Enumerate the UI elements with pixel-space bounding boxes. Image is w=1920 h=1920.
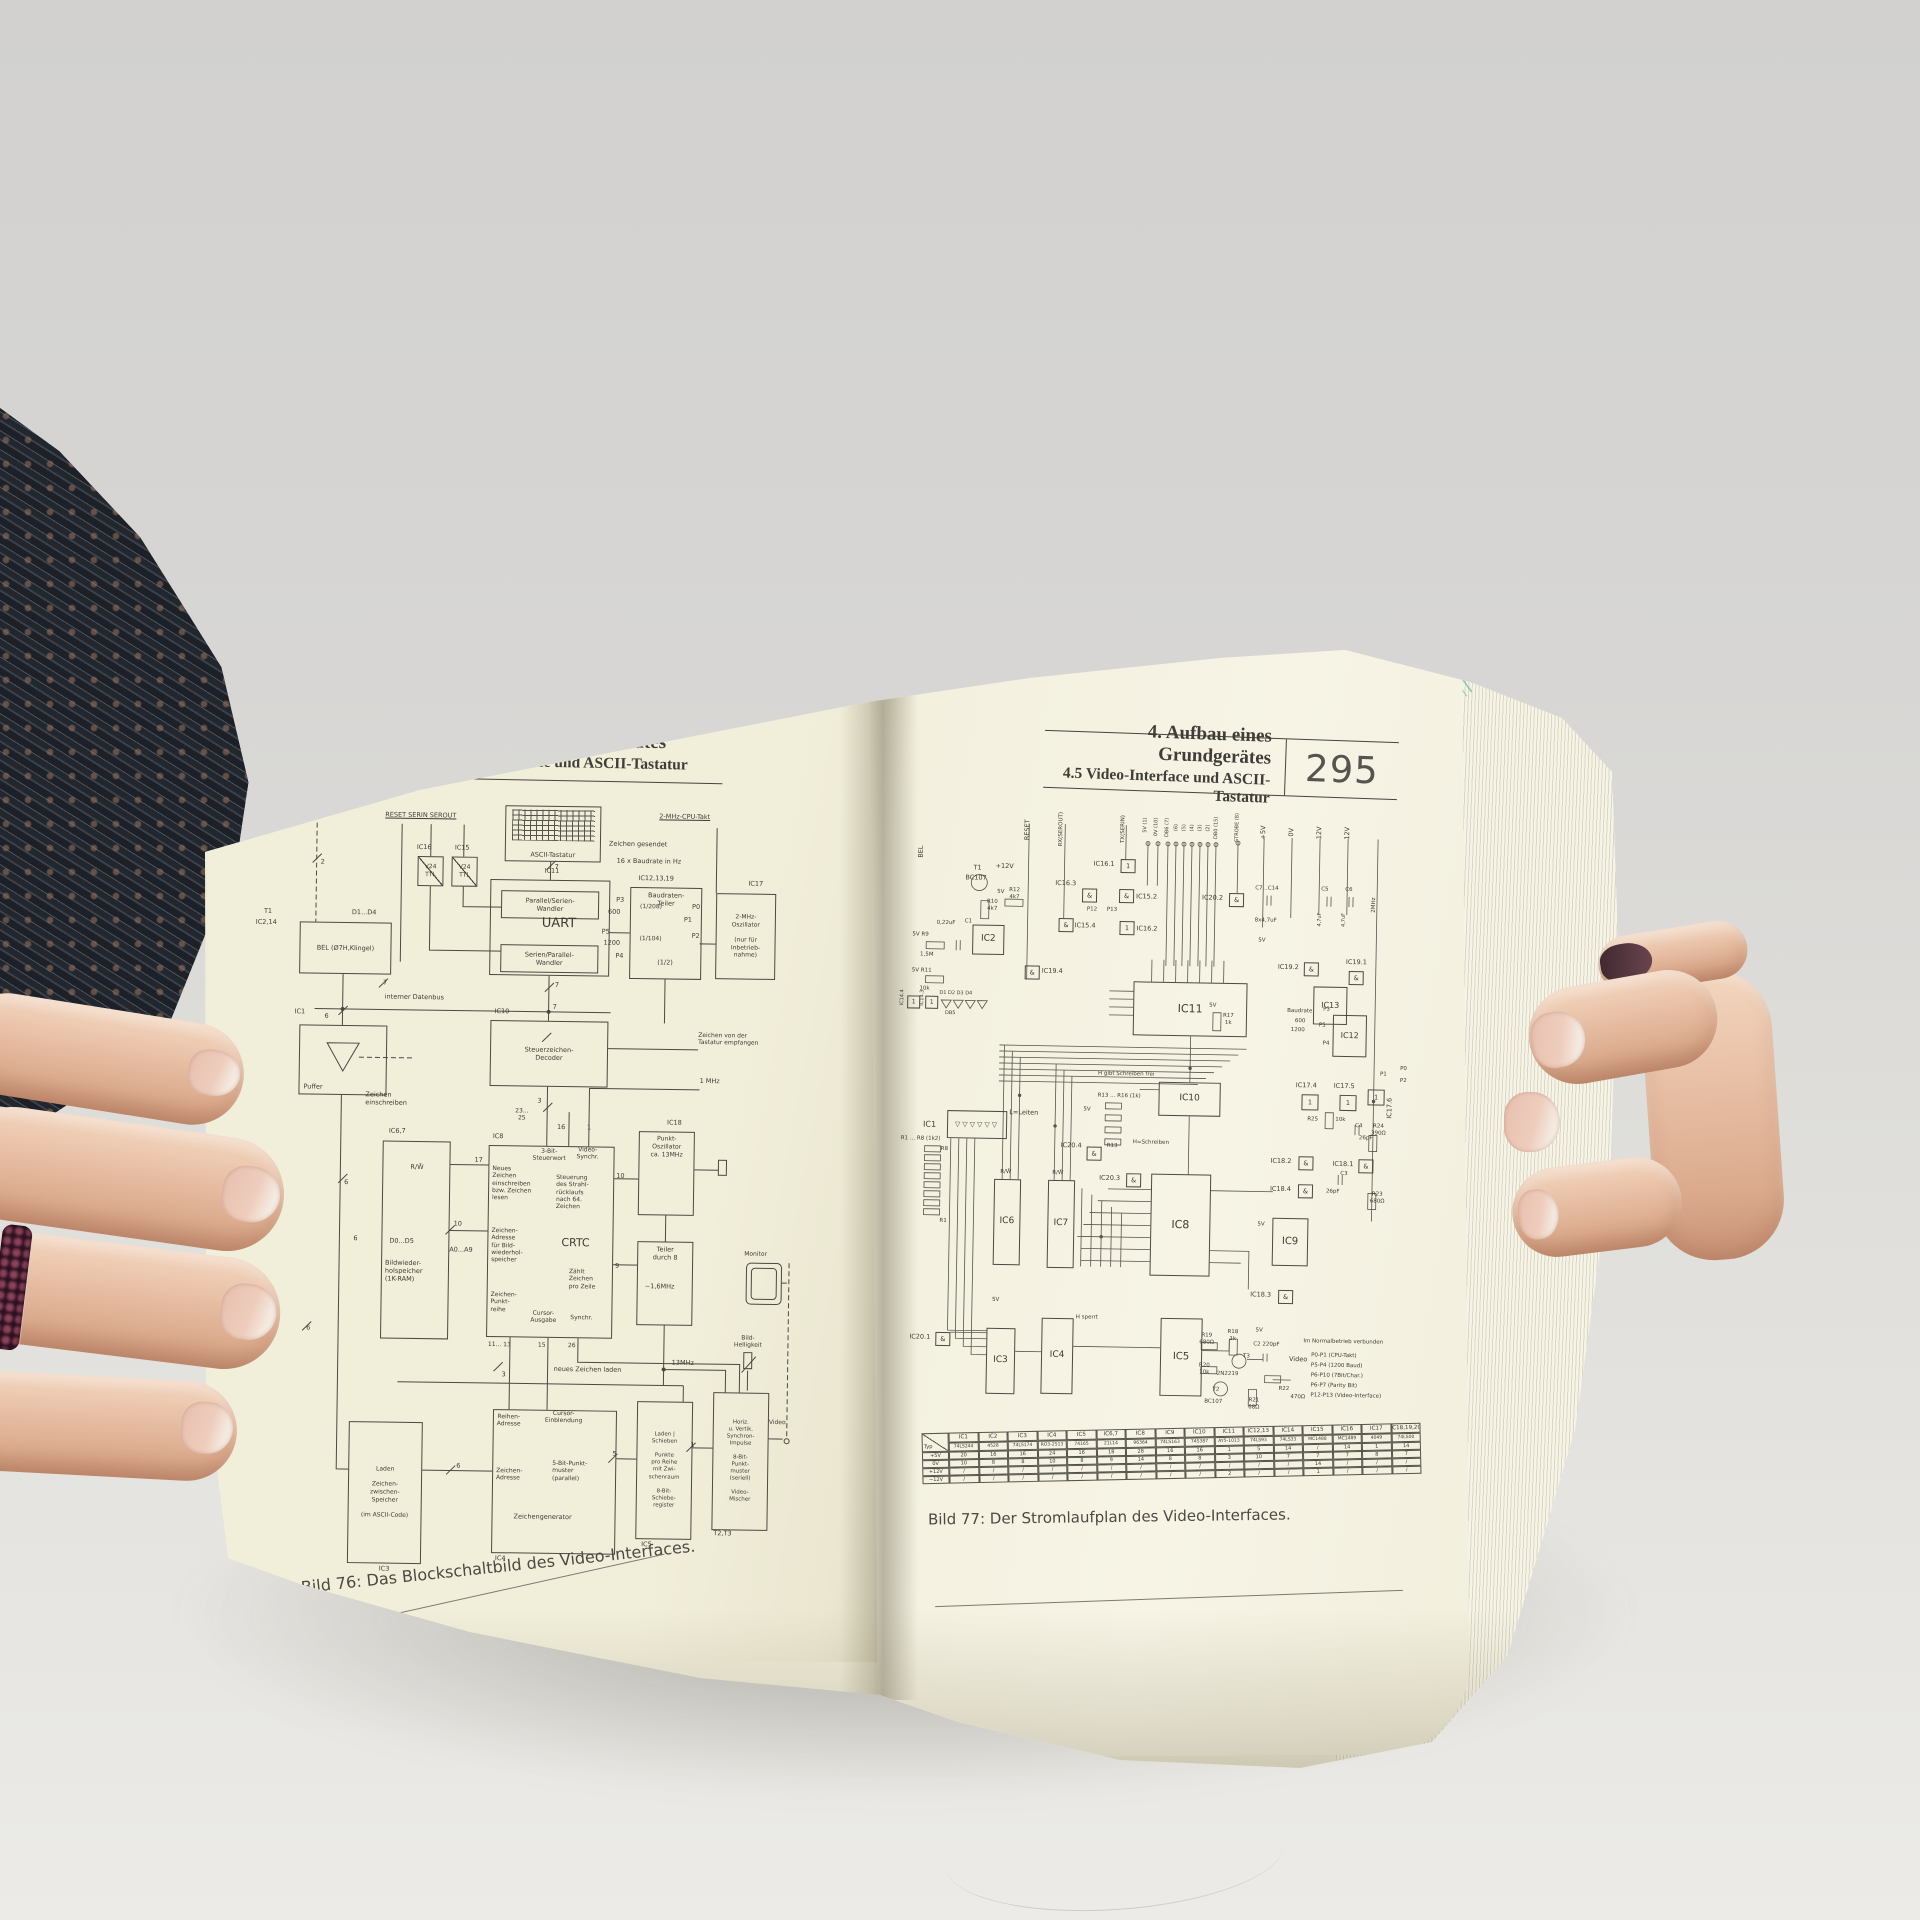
photo-scene: 294 4. Aufbau eines Grundgerätes 4.5 Vid… [0, 0, 1920, 1920]
fingernail [180, 1400, 235, 1455]
diagram-label: R/W̄ [410, 1164, 423, 1172]
diagram-label: R1 [939, 1218, 946, 1225]
chapter-title: 4. Aufbau eines Grundgerätes [1044, 718, 1272, 770]
diagram-label: P5 [1319, 1023, 1326, 1030]
diagram-label: IC20.2 [1202, 894, 1223, 902]
diagram-label: (4) [1189, 824, 1195, 831]
table-col-header: IC1 [949, 1432, 979, 1443]
section-title: 4.5 Video-Interface und ASCII-Tastatur [424, 751, 723, 775]
diagram-label: IC19.4 [1042, 968, 1063, 976]
diagram-label: P2 [1400, 1078, 1407, 1085]
diagram-label: IC12,13,19 [638, 875, 674, 883]
table-column: IC18,19,20 74LS00 14 7 / / [1391, 1423, 1422, 1475]
diagram-label: H gibt Schreiben frei [1098, 1071, 1155, 1079]
diagram-label: UART [542, 916, 577, 932]
table-columns: IC1 74LS244 20 10 / / IC2 4528 16 8 / / [949, 1423, 1423, 1484]
diagram-label: R17 1k [1223, 1013, 1234, 1027]
diagram-label: 5V [1258, 937, 1265, 944]
diagram-label: Zeichen- Punkt- reihe [490, 1291, 517, 1313]
diagram-label: R19 680Ω [1199, 1332, 1214, 1346]
diagram-label: interner Datenbus [385, 994, 444, 1003]
diagram-label: P3 [616, 897, 624, 905]
table-col-header: IC4 [1037, 1430, 1067, 1441]
table-cell-neg12v: / [1008, 1474, 1038, 1483]
diagram-label: R25 [1307, 1116, 1318, 1123]
diagram-label: 1200 [603, 940, 620, 948]
left-page-header: 294 4. Aufbau eines Grundgerätes 4.5 Vid… [282, 716, 723, 784]
table-col-header: IC18,19,20 [1391, 1423, 1421, 1434]
table-column: IC5 74165 16 8 / / [1066, 1430, 1097, 1482]
diagram-label: 5V [1083, 1106, 1090, 1113]
chapter-title: 4. Aufbau eines Grundgerätes [424, 727, 723, 755]
diagram-label: P1 [684, 917, 692, 925]
diagram-label: IC14.4 [899, 989, 905, 1005]
fingernail [1527, 1007, 1590, 1072]
diagram-label: (1/2) [657, 959, 673, 967]
diagram-label: IC19.2 [1278, 964, 1299, 972]
diagram-label: RESET [1024, 819, 1032, 840]
diagram-label: +5V [1260, 825, 1268, 839]
diagram-label: 1,5M [920, 952, 934, 959]
diagram-label: A0...A9 [449, 1246, 472, 1254]
diagram-label: 6 [353, 1235, 357, 1243]
diagram-label: (6) [1173, 824, 1179, 831]
diagram-label: 5V R9 [912, 931, 928, 938]
diagram-label: 3 [537, 1098, 541, 1106]
table-cell-neg12v: / [1067, 1473, 1097, 1482]
diagram-label: R22 [1278, 1386, 1289, 1393]
fingernail [219, 1163, 284, 1227]
diagram-label: P0-P1 (CPU-Takt) [1311, 1352, 1357, 1359]
diagram-label: IC18.4 [1270, 1186, 1291, 1194]
diagram-label: 2-MHz-CPU-Takt [659, 813, 710, 822]
diagram-label: R1 ... R8 (1k2) [901, 1135, 941, 1142]
table-column: IC11 AY5-1013 1 3 / 2 [1214, 1426, 1245, 1478]
diagram-label: 12V [1344, 827, 1352, 840]
diagram-label: (3) [1197, 824, 1203, 831]
header-divider [406, 719, 408, 777]
table-column: IC17 4049 1 8 / / [1361, 1423, 1392, 1475]
diagram-label: 470Ω [1290, 1394, 1305, 1401]
diagram-label: 600 [1295, 1018, 1306, 1025]
surface-scratch-line [942, 1788, 1289, 1920]
table-cell-neg12v: 1 [1303, 1468, 1333, 1477]
diagram-label: 0V [1288, 828, 1296, 837]
table-col-header: IC14 [1273, 1425, 1303, 1436]
diagram-label: Steuerung des Strahl- rücklaufs nach 64.… [556, 1174, 589, 1211]
table-column: IC9 74LS163 16 8 / / [1155, 1428, 1186, 1480]
diagram-label: 3 [501, 1371, 505, 1379]
diagram-label: Zeichen einschreiben [365, 1091, 407, 1107]
diagram-label: IC17.4 [1296, 1082, 1317, 1090]
right-diagram-labels: BELT1BC107+12VRESETRX(SEROUT)TX(SERIN)5V… [897, 793, 1449, 1467]
diagram-label: IC8 [493, 1133, 504, 1141]
fingernail [1504, 1092, 1560, 1152]
diagram-label: neues Zeichen laden [554, 1366, 622, 1375]
table-col-header: IC5 [1066, 1430, 1096, 1441]
diagram-label: R23 680Ω [1370, 1191, 1385, 1205]
diagram-label: 6 [344, 1179, 348, 1187]
table-col-header: IC8 [1125, 1428, 1155, 1439]
diagram-label: H sperrt [1076, 1314, 1098, 1321]
diagram-label: Neues Zeichen einschreiben bzw. Zeichen … [492, 1165, 532, 1202]
diagram-label: R20 10k [1199, 1362, 1210, 1376]
beaded-ring [0, 1223, 33, 1351]
table-row-label: −12V [922, 1476, 949, 1485]
diagram-label: P1 [1380, 1072, 1387, 1079]
diagram-label: (5) [1181, 824, 1187, 831]
ic-power-table: Typ +5V 0V +12V −12V IC1 74LS244 20 10 /… [922, 1423, 1423, 1484]
diagram-label: 1 [587, 1124, 591, 1132]
diagram-label: T1 [973, 864, 981, 872]
diagram-label: R21 68Ω [1248, 1397, 1259, 1411]
diagram-label: Zeichengenerator [513, 1513, 571, 1522]
table-col-header: IC15 [1302, 1425, 1332, 1436]
diagram-label: 5V [992, 1297, 999, 1304]
diagram-label: R/W̄ [1000, 1169, 1011, 1176]
diagram-label: Cursor- Einblendung [545, 1410, 583, 1425]
table-col-header: IC16 [1332, 1424, 1362, 1435]
diagram-label: 5V [1255, 1327, 1262, 1334]
diagram-label: P4 [615, 953, 623, 961]
diagram-label: DB0 (15) [1213, 817, 1219, 839]
diagram-label: P13 [1107, 907, 1117, 914]
diagram-label: 6 [456, 1463, 460, 1471]
diagram-label: RX(SEROUT) [1058, 812, 1065, 847]
diagram-label: Cursor- Ausgabe [530, 1310, 556, 1325]
diagram-label: C3 [1340, 1171, 1347, 1178]
diagram-label: 5V R11 [912, 967, 932, 974]
diagram-label: 5 [612, 1451, 616, 1459]
table-cell-neg12v: / [1333, 1467, 1363, 1476]
diagram-label: IC15.4 [1074, 922, 1095, 930]
table-cell-neg12v: / [979, 1474, 1009, 1483]
diagram-label: D0...D5 [389, 1238, 414, 1246]
table-column: IC12,13 74LS93 5 10 / / [1243, 1426, 1274, 1478]
diagram-label: (1/104) [640, 935, 662, 943]
diagram-label: IC1 [294, 1008, 305, 1016]
diagram-label: T2,T3 [713, 1530, 731, 1538]
diagram-label: 23... 25 [515, 1107, 529, 1122]
diagram-label: P6-P10 (7Bit/Char.) [1311, 1372, 1363, 1380]
diagram-label: BC107 [965, 874, 986, 882]
table-col-header: IC9 [1155, 1428, 1185, 1439]
diagram-label: IC17 [748, 881, 763, 889]
diagram-label: Video [1289, 1356, 1307, 1364]
diagram-label: 5V [1209, 1003, 1216, 1010]
diagram-label: Zeichen- Adresse für Bild- wiederhol- sp… [491, 1227, 523, 1264]
diagram-label: 1200 [1291, 1027, 1305, 1034]
diagram-label: 17 [474, 1157, 482, 1165]
diagram-label: C6 [1345, 887, 1352, 894]
diagram-label: DB6 (7) [1164, 818, 1170, 837]
table-column: IC10 74S387 16 8 / / [1184, 1427, 1215, 1479]
table-cell-neg12v: / [1392, 1466, 1422, 1475]
diagram-label: R13 [1107, 1143, 1118, 1150]
left-page-number: 294 [282, 717, 407, 777]
diagram-label: 1 [690, 1442, 694, 1450]
diagram-label: 1 MHz [700, 1078, 720, 1086]
diagram-label: R24 390Ω [1371, 1123, 1386, 1137]
right-schematic-diagram: IC21&&&1&&11IC11&&IC13IC12IC10▽▽▽▽▽▽111&… [897, 793, 1449, 1467]
diagram-label: IC6,7 [389, 1128, 406, 1136]
diagram-label: IC16.1 [1094, 861, 1115, 869]
diagram-label: 13MHz [672, 1360, 694, 1368]
diagram-label: P0 [692, 904, 700, 912]
diagram-label: 0V (10) [1153, 818, 1159, 837]
diagram-label: 5-Bit-Punkt- muster (parallel) [552, 1460, 587, 1482]
table-cell-neg12v: / [1097, 1472, 1127, 1481]
diagram-label: IC16.3 [1055, 880, 1076, 888]
diagram-label: D1 D2 D3 D4 [939, 990, 972, 997]
diagram-label: 15 [538, 1342, 546, 1349]
table-corner-label: Typ [922, 1433, 949, 1453]
diagram-label: T2 [1212, 1387, 1219, 1394]
diagram-label: IC20.1 [909, 1333, 930, 1341]
diagram-label: Zählt Zeichen pro Zeile [569, 1268, 596, 1290]
diagram-label: 8x4,7uF [1255, 917, 1277, 924]
table-col-header: IC12,13 [1243, 1426, 1273, 1437]
diagram-label: P4 [1322, 1041, 1329, 1048]
diagram-label: 4,7uF [1341, 913, 1347, 927]
diagram-label: R18 1k [1227, 1329, 1238, 1343]
diagram-label: IC18.2 [1270, 1158, 1291, 1166]
diagram-label: IC15 [455, 844, 470, 852]
diagram-label: STROBE (8) [1234, 813, 1241, 842]
diagram-label: P5-P4 (1200 Baud) [1311, 1362, 1363, 1370]
diagram-label: 16 [557, 1124, 565, 1132]
table-column: IC1 74LS244 20 10 / / [949, 1432, 980, 1484]
diagram-label: R10 4k7 [987, 899, 998, 913]
table-col-header: IC3 [1008, 1431, 1038, 1442]
diagram-label: C2 220pF [1253, 1341, 1279, 1348]
diagram-label: IC20.4 [1061, 1142, 1082, 1150]
table-cell-neg12v: / [1038, 1473, 1068, 1482]
diagram-label: 10k [1335, 1117, 1345, 1124]
diagram-label: IC1 [923, 1120, 936, 1130]
table-col-header: IC17 [1361, 1423, 1391, 1434]
table-column: IC4 RO3-2513 24 10 / / [1037, 1430, 1068, 1482]
diagram-label: P12 [1087, 906, 1097, 913]
diagram-label: IC17.6 [1386, 1098, 1394, 1119]
fingernail [185, 1046, 244, 1100]
diagram-label: 10 [454, 1221, 462, 1229]
diagram-label: IC2,14 [256, 919, 277, 927]
diagram-label: IC16.2 [1136, 925, 1157, 933]
diagram-label: 3-Bit- Steuerwort [532, 1148, 565, 1163]
diagram-label: CRTC [561, 1236, 589, 1250]
diagram-label: BEL [918, 846, 926, 858]
diagram-label: 7 [555, 864, 559, 872]
diagram-label: BC107 [1204, 1399, 1222, 1406]
diagram-label: (1/208) [640, 903, 662, 911]
diagram-label: IC17.5 [1334, 1083, 1355, 1091]
fingernail [1516, 1187, 1562, 1242]
diagram-label: Zeichen gesendet [609, 841, 668, 850]
diagram-label: IC20.3 [1099, 1175, 1120, 1183]
table-column: IC16 MC1489 14 7 / / [1332, 1424, 1363, 1476]
table-cell-neg12v: / [1244, 1469, 1274, 1478]
diagram-label: 6 [306, 1324, 310, 1332]
table-cell-neg12v: / [1126, 1471, 1156, 1480]
diagram-label: ~1,6MHz [645, 1283, 675, 1291]
left-diagram-labels: RESET SERIN SEROUT2-MHz-CPU-TaktZeichen … [245, 808, 876, 1587]
diagram-label: Video- Synchr. [577, 1146, 599, 1161]
right-page-number: 295 [1285, 739, 1399, 799]
diagram-label: Zeichen von der Tastatur empfangen [698, 1032, 758, 1047]
diagram-label: Bild- Helligkeit [734, 1334, 762, 1349]
diagram-label: R13 ... R16 (1k) [1098, 1093, 1141, 1100]
diagram-label: T3 [1243, 1353, 1250, 1360]
diagram-label: DB5 [945, 1010, 956, 1016]
left-pinky-finger [0, 1369, 239, 1484]
diagram-label: Im Normalbetrieb verbunden [1303, 1338, 1383, 1346]
diagram-label: T1 [264, 908, 272, 916]
diagram-label: R8 [941, 1146, 948, 1153]
diagram-label: P3 [1323, 1007, 1330, 1014]
table-col-header: IC10 [1184, 1427, 1214, 1438]
diagram-label: 600 [608, 909, 621, 917]
diagram-label: P0 [1400, 1066, 1407, 1073]
diagram-label: R/W̄ [1052, 1170, 1063, 1177]
table-cell-neg12v: / [1185, 1470, 1215, 1479]
diagram-label: Synchr. [570, 1314, 592, 1322]
table-cell-neg12v: / [1362, 1466, 1392, 1475]
diagram-label: 26pF [1326, 1189, 1340, 1196]
diagram-label: 7 [555, 982, 559, 990]
diagram-label: 26 [568, 1342, 576, 1349]
diagram-label: D1...D4 [352, 909, 377, 917]
table-column: IC8 96364 28 14 / / [1125, 1428, 1156, 1480]
diagram-label: C7...C14 [1255, 885, 1279, 892]
diagram-label: C5 [1321, 887, 1328, 894]
diagram-label: C1 [965, 918, 972, 925]
diagram-label: 0,22uF [937, 920, 956, 927]
table-column: IC6,7 21L14 18 9 / / [1096, 1429, 1127, 1481]
diagram-label: IC18.3 [1250, 1291, 1271, 1299]
table-column: IC2 4528 16 8 / / [978, 1431, 1009, 1483]
diagram-label: Baudrate [1287, 1008, 1312, 1015]
diagram-label: TX(SERIN) [1120, 815, 1127, 843]
diagram-label: L=Leiten [1009, 1109, 1038, 1117]
table-cell-neg12v: / [1156, 1471, 1186, 1480]
table-column: IC3 74LS174 16 8 / / [1008, 1431, 1039, 1483]
right-page-header: 4. Aufbau eines Grundgerätes 4.5 Video-I… [1043, 730, 1399, 800]
diagram-label: 4,7uF [1317, 912, 1323, 926]
diagram-label: 2 [321, 859, 325, 867]
diagram-label: 10k [919, 986, 929, 993]
diagram-label: Bildwieder- holspeicher (1K-RAM) [385, 1260, 423, 1284]
diagram-label: 5V [1257, 1221, 1264, 1228]
diagram-label: RESET SERIN SEROUT [385, 812, 456, 821]
diagram-label: C4 [1355, 1123, 1362, 1130]
diagram-label: 5V (1) [1142, 817, 1148, 832]
fingernail [217, 1281, 279, 1343]
diagram-label: H=Schreiben [1133, 1139, 1169, 1146]
table-column: IC15 MC1488 / 7 14 1 [1302, 1425, 1333, 1477]
table-cell-neg12v: / [1274, 1468, 1304, 1477]
diagram-label: P12-P13 (Video-Interface) [1310, 1392, 1381, 1400]
diagram-label: IC10 [495, 1008, 510, 1016]
diagram-label: P6-P7 (Parity Bit) [1311, 1382, 1358, 1390]
diagram-label: 7 [553, 1004, 557, 1012]
diagram-label: Monitor [744, 1251, 767, 1259]
table-column: IC14 74LS33 14 7 / / [1273, 1425, 1304, 1477]
diagram-label: (2) [1205, 825, 1211, 832]
table-col-header: IC11 [1214, 1426, 1244, 1437]
table-cell-neg12v: 2 [1215, 1469, 1245, 1478]
table-cell-neg12v: / [949, 1475, 979, 1484]
diagram-label: 16 x Baudrate in Hz [617, 858, 682, 867]
diagram-label: 11... 13 [488, 1341, 511, 1349]
left-block-diagram: ASCII-TastaturV24 TTLV24 TTLParallel/Ser… [245, 808, 876, 1587]
diagram-label: +12V [996, 863, 1014, 871]
diagram-label: IC16 [417, 844, 432, 852]
diagram-label: IC15.2 [1136, 893, 1157, 901]
diagram-label: 7 [383, 980, 387, 988]
diagram-label: 10 [616, 1173, 624, 1181]
diagram-label: IC18 [667, 1119, 682, 1127]
diagram-label: 2MHz [1371, 897, 1378, 912]
table-col-header: IC2 [978, 1431, 1008, 1442]
diagram-label: P2 [692, 933, 700, 941]
diagram-label: R12 4k7 [1009, 887, 1020, 901]
diagram-label: Video [769, 1419, 786, 1427]
diagram-label: 2N2219 [1217, 1371, 1239, 1378]
diagram-label: IC18.1 [1332, 1161, 1353, 1169]
diagram-label: Zeichen- Adresse [496, 1467, 522, 1482]
diagram-label: 12V [1316, 826, 1324, 839]
diagram-label: Reihen- Adresse [497, 1413, 521, 1428]
diagram-label: 9 [615, 1263, 619, 1271]
diagram-label: IC19.1 [1346, 959, 1367, 967]
diagram-label: 5V [997, 889, 1004, 896]
table-col-header: IC6,7 [1096, 1429, 1126, 1440]
diagram-label: P5 [602, 929, 610, 937]
diagram-label: 6 [324, 1013, 328, 1021]
